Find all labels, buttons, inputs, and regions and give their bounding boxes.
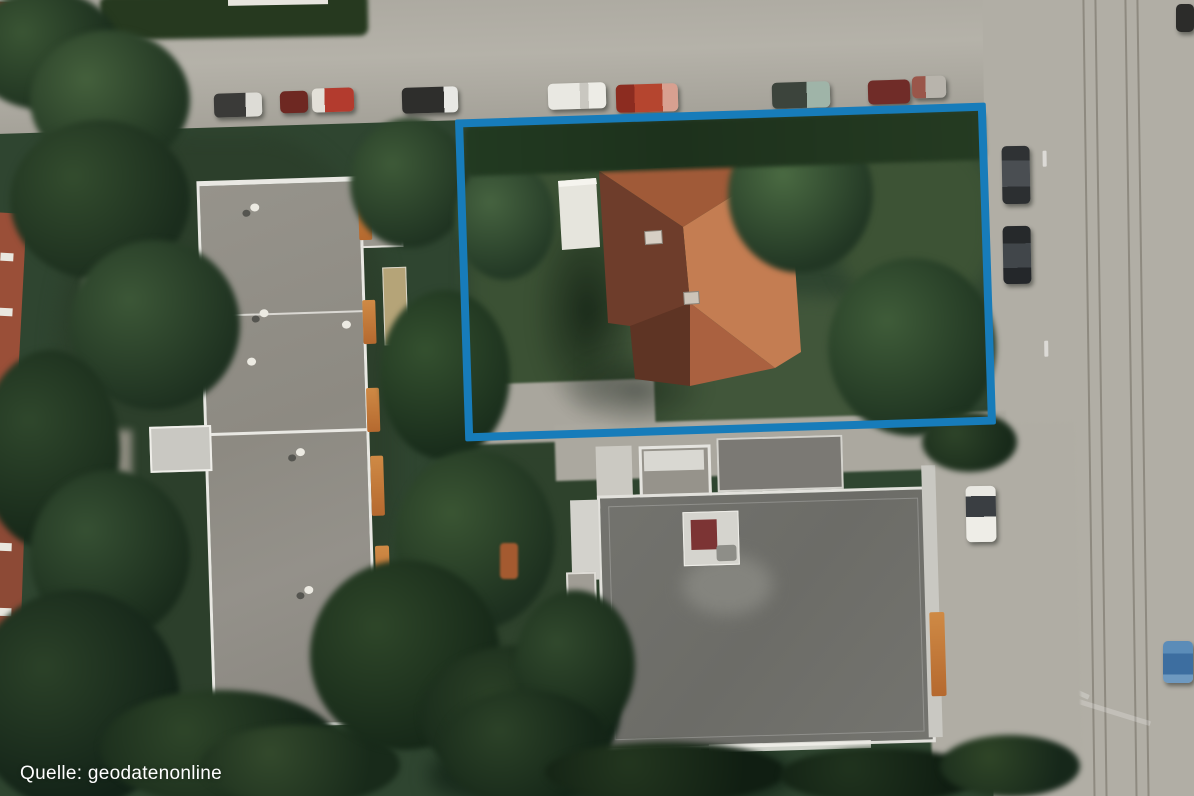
small-object-orange: [500, 543, 518, 579]
highlight-rectangle: [455, 103, 996, 442]
aerial-map[interactable]: Quelle: geodatenonline: [0, 0, 1194, 796]
parked-car: [1176, 4, 1194, 32]
rooftop-fan: [716, 545, 736, 562]
parked-car: [1163, 641, 1193, 683]
parked-car: [548, 82, 607, 110]
parked-car: [966, 486, 997, 543]
rooftop-structure: [682, 511, 739, 567]
rooftop-hatch-red: [691, 519, 718, 550]
parked-car: [772, 81, 831, 109]
parked-car: [616, 83, 679, 113]
source-caption: Quelle: geodatenonline: [20, 763, 222, 785]
tram-rail: [1136, 0, 1150, 796]
parked-car: [912, 76, 947, 99]
terrace-box: [716, 435, 843, 492]
balcony-strip: [366, 388, 380, 432]
tram-rail: [1124, 0, 1138, 796]
tree: [350, 118, 470, 248]
lane-marking: [1044, 341, 1048, 357]
tram-rail: [1094, 0, 1108, 796]
balcony-strip: [362, 300, 376, 344]
parked-car: [214, 92, 263, 117]
balcony-strip: [370, 456, 385, 516]
parked-car: [312, 87, 355, 112]
annex-left: [570, 500, 600, 581]
tree: [940, 735, 1080, 796]
tree: [545, 742, 785, 796]
parked-car: [868, 79, 911, 104]
dormer: [0, 308, 13, 317]
parked-car: [402, 86, 459, 114]
tram-rail: [1082, 0, 1096, 796]
building-bottom-roof: [597, 486, 936, 751]
parked-car: [1002, 226, 1031, 284]
terrace-roof: [644, 450, 705, 472]
parked-car: [280, 91, 309, 114]
entrance-walkway: [149, 425, 212, 473]
dormer: [0, 253, 13, 262]
parked-car: [1001, 146, 1030, 204]
lane-marking: [1043, 151, 1047, 167]
balcony-strip: [929, 612, 946, 696]
dormer: [0, 543, 12, 551]
roof-inner-line: [608, 498, 924, 741]
